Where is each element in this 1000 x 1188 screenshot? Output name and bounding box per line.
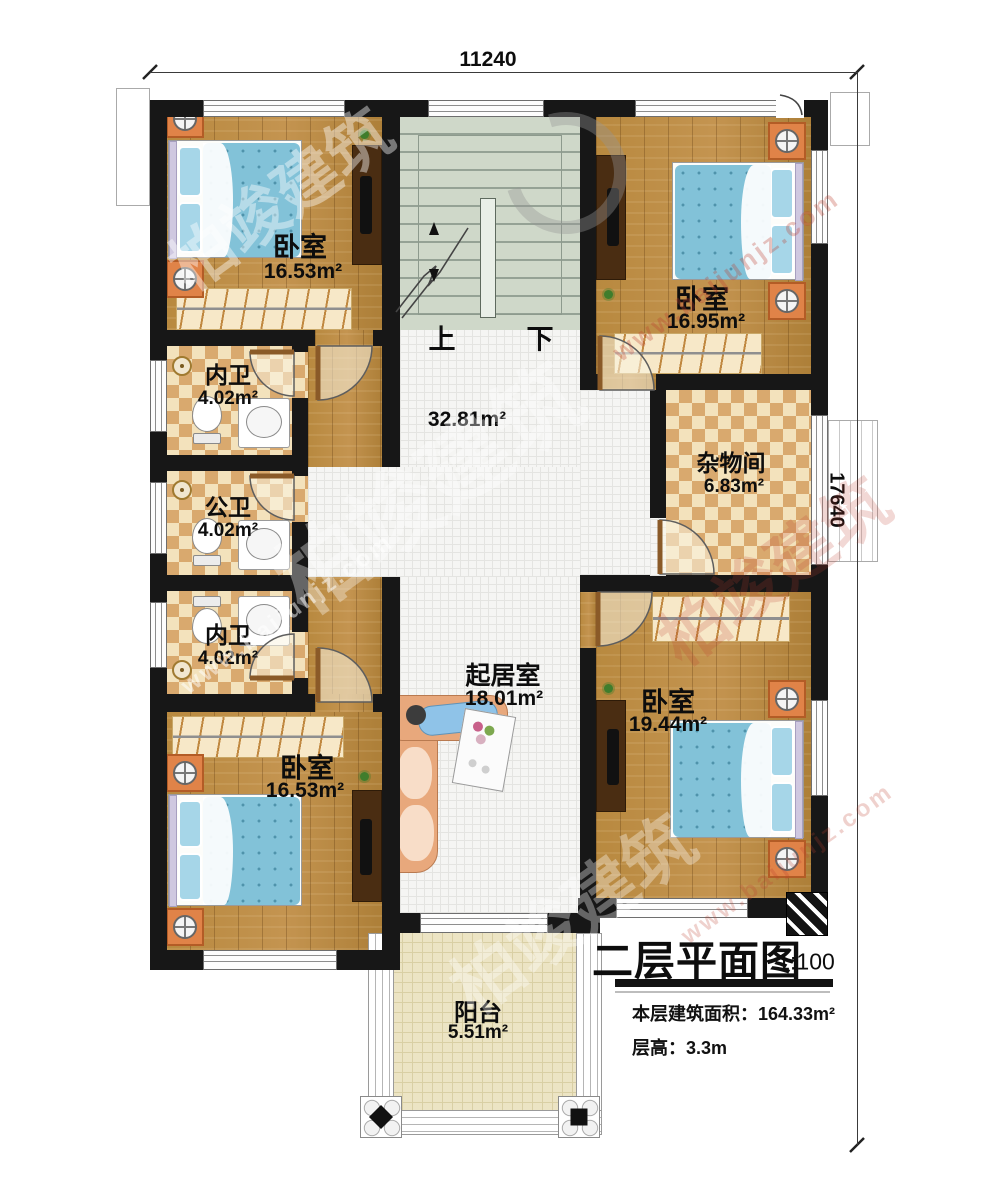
stair-up-label: 上 <box>429 318 456 357</box>
dimension-top-value: 11240 <box>459 48 516 72</box>
dimension-line-right <box>857 72 858 1145</box>
plan-title: 二层平面图 <box>592 927 802 987</box>
info-floor-area-label: 本层建筑面积： <box>632 1004 758 1024</box>
label-bedroom-tl-area: 16.53m² <box>264 260 342 284</box>
label-bath-bottom-name: 内卫 <box>205 616 251 650</box>
info-floor-area-value: 164.33m² <box>758 1004 835 1024</box>
info-floor-area: 本层建筑面积：164.33m² <box>632 1000 835 1026</box>
plan-scale: 1:100 <box>777 949 835 976</box>
label-bath-top-name: 内卫 <box>205 356 251 390</box>
label-living-area: 18.01m² <box>465 687 543 711</box>
door-arc-bedroom-tl <box>318 346 372 400</box>
label-bedroom-tr-area: 16.95m² <box>667 310 745 334</box>
label-bedroom-br-area: 19.44m² <box>629 713 707 737</box>
stair-down-label: 下 <box>527 318 554 357</box>
door-arc-bedroom-bl <box>318 648 372 702</box>
label-bath-public-area: 4.02m² <box>198 520 258 542</box>
label-balcony-area: 5.51m² <box>448 1022 508 1044</box>
label-hall-area: 32.81m² <box>428 408 506 432</box>
title-underline-thin <box>615 991 830 993</box>
label-bedroom-bl-area: 16.53m² <box>266 779 344 803</box>
label-storage-area: 6.83m² <box>704 476 764 498</box>
label-bath-top-area: 4.02m² <box>198 388 258 410</box>
label-bedroom-tl-name: 卧室 <box>273 226 327 265</box>
door-arc-storage <box>660 520 714 574</box>
title-underline-bar <box>615 979 833 987</box>
info-floor-height: 层高：3.3m <box>632 1034 727 1060</box>
floorplan-page: { "dimensions": { "width_top": "11240", … <box>0 0 1000 1188</box>
label-bath-bottom-area: 4.02m² <box>198 648 258 670</box>
info-floor-height-label: 层高： <box>632 1038 686 1058</box>
door-arc-bedroom-br <box>598 592 652 646</box>
dimension-right-value: 17640 <box>825 472 848 528</box>
label-bath-public-name: 公卫 <box>205 488 251 522</box>
dimension-line-top <box>150 72 857 73</box>
door-arc-bath-public <box>250 476 294 520</box>
door-arc-bedroom-tr <box>600 336 654 390</box>
label-storage-name: 杂物间 <box>697 444 766 478</box>
flue-curve <box>780 95 802 115</box>
info-floor-height-value: 3.3m <box>686 1038 727 1058</box>
stair-arrow-up <box>429 222 439 235</box>
